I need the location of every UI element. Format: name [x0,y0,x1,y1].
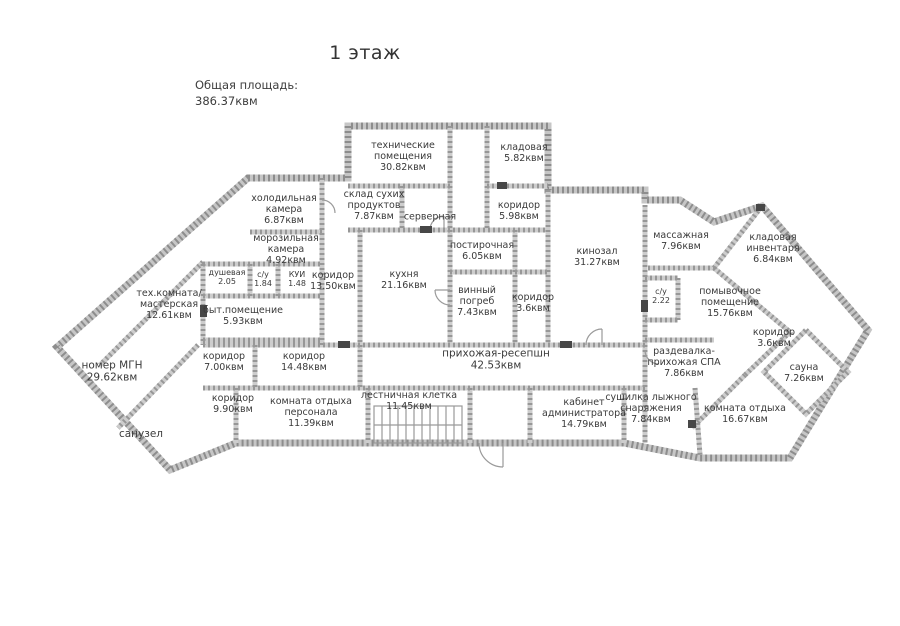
room-label-sauna: сауна7.26квм [774,362,834,384]
room-label-kladovaya-inventarya: кладовая инвентаря6.84квм [732,232,814,266]
room-label-sanuzel: санузел [106,428,176,440]
room-label-komnata-otdyha: комната отдыха16.67квм [691,403,799,425]
room-label-koridor-36-right: коридор3.6квм [741,327,807,349]
room-label-koridor-36-center: коридор3.6квм [504,292,562,314]
room-label-postirochnaya: постирочная6.05квм [438,240,526,262]
room-label-kladovaya-top: кладовая5.82квм [489,142,559,164]
room-label-byt-pomeshenie: быт.помещение5.93квм [187,305,299,327]
room-label-prihozhaya: прихожая-ресепшн42.53квм [424,348,569,373]
room-label-koridor-1350: коридор13.50квм [303,270,363,292]
room-label-koridor-700: коридор7.00квм [192,351,256,373]
floor-plan-page: 1 этаж Общая площадь: 386.37квм [0,0,900,626]
room-label-su-184: с/у1.84 [246,271,280,289]
room-label-koridor-1448: коридор14.48квм [270,351,338,373]
room-label-tech-rooms: технические помещения30.82квм [357,140,449,174]
room-label-kholodilnaya: холодильная камера6.87квм [242,193,326,227]
room-label-nomer-mgn: номер МГН29.62квм [65,360,160,385]
room-label-kinozal: кинозал31.27квм [557,246,637,268]
room-label-lestnichnaya: лестничная клетка11.45квм [349,390,469,412]
room-label-servernaya: серверная [390,211,470,222]
room-label-su-222: с/у2.22 [643,288,679,306]
room-label-pomyvochnoe: помывочное помещение15.76квм [680,286,780,320]
room-label-morozilnaya: морозильная камера4.92квм [240,233,332,267]
room-label-vinnyj-pogreb: винный погреб7.43квм [444,285,510,319]
room-label-kuhnya: кухня21.16квм [364,269,444,291]
room-label-massazhnaya: массажная7.96квм [642,230,720,252]
room-label-koridor-598: коридор5.98квм [485,200,553,222]
room-label-razdevalka-spa: раздевалка- прихожая СПА7.86квм [637,346,731,380]
